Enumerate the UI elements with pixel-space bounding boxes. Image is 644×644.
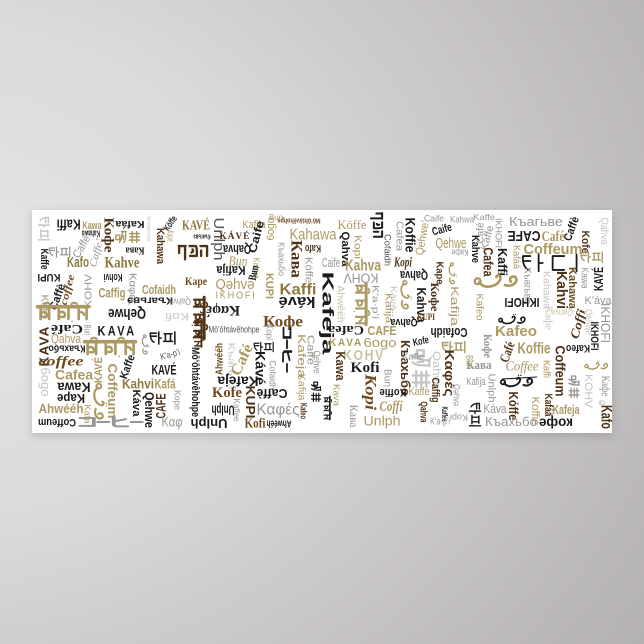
svg-text:Kaffe: Kaffe (38, 249, 50, 270)
svg-text:IKHOFI: IKHOFI (494, 218, 505, 248)
svg-text:Kahve: Kahve (105, 255, 140, 272)
svg-text:Къахьбо: Къахьбо (277, 242, 288, 276)
svg-text:Unlph: Unlph (364, 414, 401, 429)
svg-text:Кофе: Кофе (481, 334, 493, 358)
svg-text:Kahawa: Kahawa (154, 228, 166, 265)
svg-text:Cafea: Cafea (481, 248, 496, 277)
svg-text:KUPI: KUPI (243, 386, 257, 419)
svg-text:Káva: Káva (130, 390, 142, 418)
svg-text:Qahva: Qahva (399, 268, 428, 282)
svg-text:Ahwééh: Ahwééh (267, 418, 292, 429)
svg-text:Qahva: Qahva (168, 297, 191, 308)
svg-text:Kawa: Kawa (333, 352, 347, 382)
svg-text:Kopi: Kopi (450, 413, 468, 424)
svg-text:Καφ: Καφ (162, 415, 183, 430)
svg-text:Bun: Bun (465, 355, 476, 369)
svg-text:Coffeum: Coffeum (553, 346, 568, 397)
svg-text:Cafea: Cafea (327, 323, 364, 337)
svg-text:KAVÉ: KAVÉ (152, 363, 177, 378)
svg-text:Caffè: Caffè (256, 386, 287, 400)
svg-text:Cafea: Cafea (394, 221, 405, 251)
svg-text:Köffe: Köffe (338, 218, 367, 232)
svg-text:Къагьве: Къагьве (509, 215, 563, 229)
svg-text:Кава: Кава (288, 240, 305, 278)
svg-text:Mōʻōhtávêhohpe: Mōʻōhtávêhohpe (209, 324, 260, 335)
svg-text:Káva: Káva (484, 402, 507, 416)
svg-text:Kape: Kape (185, 276, 207, 288)
svg-text:Kaffe: Kaffe (402, 351, 424, 362)
svg-text:KAVA: KAVA (98, 324, 137, 339)
svg-text:Kaffi: Kaffi (57, 216, 81, 232)
svg-text:Къагьвэ: Къагьвэ (127, 295, 173, 306)
svg-text:6ogo: 6ogo (38, 368, 52, 397)
svg-text:Kaffe: Kaffe (473, 212, 495, 222)
svg-text:кофе: кофе (539, 416, 573, 431)
svg-text:KAVÉ: KAVÉ (591, 267, 606, 291)
svg-text:KUPI: KUPI (263, 273, 275, 299)
svg-text:Unlph: Unlph (212, 403, 235, 418)
svg-text:Unlph: Unlph (191, 416, 228, 430)
svg-text:Kʻa-pʻi: Kʻa-pʻi (159, 346, 181, 362)
svg-text:Kʻa·pʻi: Kʻa·pʻi (371, 285, 382, 319)
svg-text:KOHV: KOHV (344, 271, 379, 286)
svg-text:Къагьвэ: Къагьвэ (194, 233, 211, 242)
svg-text:Kava: Kava (332, 384, 343, 407)
svg-text:Kofi: Kofi (165, 310, 189, 322)
svg-text:Къахьбо: Къахьбо (485, 415, 537, 429)
svg-text:Kávé: Kávé (389, 286, 400, 310)
svg-text:Unlph: Unlph (486, 374, 497, 403)
svg-text:Kahwa: Kahwa (450, 214, 475, 225)
svg-text:Kafeo: Kafeo (299, 403, 310, 419)
svg-text:Ahwééh: Ahwééh (215, 343, 226, 375)
svg-text:Qehwe: Qehwe (108, 305, 146, 321)
svg-text:Caffè: Caffè (562, 215, 582, 243)
svg-text:Кафе: Кафе (452, 248, 469, 259)
svg-text:Kafa: Kafa (83, 405, 94, 425)
svg-text:Qahva: Qahva (550, 308, 573, 319)
svg-text:Kopi: Kopi (265, 324, 276, 340)
svg-text:Caffig: Caffig (429, 378, 441, 403)
svg-text:Coffeum: Coffeum (105, 364, 119, 419)
svg-text:Coffeum: Coffeum (38, 416, 76, 428)
svg-text:Kafija: Kafija (216, 263, 246, 277)
svg-text:Kafáa: Kafáa (115, 218, 144, 229)
svg-text:Caffig: Caffig (99, 286, 126, 301)
svg-text:Cofaidh: Cofaidh (268, 361, 279, 390)
svg-text:Qehwe: Qehwe (583, 309, 594, 335)
svg-text:Kohvi: Kohvi (104, 271, 123, 283)
svg-text:KUPI: KUPI (38, 271, 61, 283)
svg-text:Кофе: Кофе (428, 283, 440, 312)
svg-text:Coffee: Coffee (506, 359, 539, 374)
svg-text:Kape: Kape (166, 231, 177, 242)
svg-text:Kafeo: Kafeo (566, 342, 590, 354)
svg-text:Kʻa-pʻi: Kʻa-pʻi (430, 416, 450, 428)
svg-text:Caife: Caife (424, 213, 444, 224)
svg-text:Mōʻōhtávêhohpe: Mōʻōhtávêhohpe (145, 217, 152, 242)
svg-text:Kahawa: Kahawa (541, 271, 552, 309)
svg-text:Mōʻōhtávêhohpe: Mōʻōhtávêhohpe (278, 217, 321, 226)
svg-text:Kafo: Kafo (67, 255, 89, 271)
svg-text:KOHV: KOHV (582, 374, 594, 408)
svg-text:Qəhvə: Qəhvə (452, 384, 463, 406)
svg-text:Köffe: Köffe (303, 257, 314, 283)
svg-text:KÁVÉ: KÁVÉ (220, 230, 251, 242)
svg-text:Kafija: Kafija (296, 374, 307, 401)
svg-text:IKHOFI: IKHOFI (216, 291, 257, 302)
svg-text:Ahwééh: Ahwééh (39, 402, 84, 416)
svg-text:Кава: Кава (347, 405, 359, 428)
svg-text:Cofaidh: Cofaidh (383, 234, 394, 266)
svg-text:Kafeja: Kafeja (553, 403, 581, 417)
svg-text:Kafeo: Kafeo (474, 294, 485, 321)
svg-text:Kahvi: Kahvi (553, 271, 569, 309)
svg-text:KAVÉ: KAVÉ (92, 357, 105, 383)
svg-text:Bun: Bun (269, 212, 283, 222)
svg-text:Kafeo: Kafeo (495, 324, 537, 340)
svg-text:Kafáä: Kafáä (511, 245, 522, 269)
svg-text:CAFE: CAFE (507, 227, 540, 243)
svg-text:Kofe: Kofe (412, 335, 430, 349)
svg-text:KUPI: KUPI (417, 313, 435, 323)
svg-text:Cofaidh: Cofaidh (431, 325, 468, 339)
svg-text:Kafo: Kafo (598, 405, 613, 429)
svg-text:Kofi: Kofi (245, 416, 266, 431)
svg-text:©: © (599, 399, 607, 408)
svg-text:Kaffi: Kaffi (541, 360, 552, 378)
svg-text:IKHOFI: IKHOFI (505, 295, 540, 309)
svg-text:Kafija: Kafija (448, 286, 460, 327)
svg-text:Kawa: Kawa (579, 268, 590, 289)
svg-text:Kafija: Kafija (467, 376, 486, 388)
svg-text:Qahva: Qahva (598, 218, 610, 246)
svg-text:Kopi: Kopi (393, 255, 412, 270)
svg-text:Koffie: Koffie (518, 341, 551, 358)
svg-text:KAVÉ: KAVÉ (182, 218, 210, 233)
svg-text:Qahva: Qahva (390, 316, 418, 328)
svg-text:Kopi: Kopi (362, 373, 379, 411)
svg-text:Kape: Kape (434, 262, 445, 285)
svg-text:Kahve: Kahve (469, 235, 481, 263)
svg-text:kávé: kávé (279, 293, 316, 309)
svg-text:Kafo: Kafo (305, 242, 321, 254)
svg-text:Bun: Bun (382, 369, 393, 387)
svg-text:Kopi: Kopi (352, 235, 363, 259)
svg-text:Bun: Bun (83, 325, 94, 336)
svg-text:Koffie: Koffie (380, 386, 407, 398)
svg-text:Kope: Kope (173, 390, 184, 410)
svg-text:coffee: coffee (39, 354, 84, 369)
svg-text:KOHV: KOHV (84, 274, 95, 308)
svg-text:IKHOFI: IKHOFI (598, 303, 612, 343)
svg-text:Kaffe: Kaffe (409, 386, 430, 398)
svg-text:Qehve: Qehve (311, 351, 322, 374)
svg-text:Mōʻōhtávêhohpe: Mōʻōhtávêhohpe (189, 347, 201, 417)
svg-text:Qahva: Qahva (418, 402, 429, 423)
svg-text:Кафе: Кафе (599, 376, 611, 397)
svg-text:Caife: Caife (322, 256, 340, 270)
